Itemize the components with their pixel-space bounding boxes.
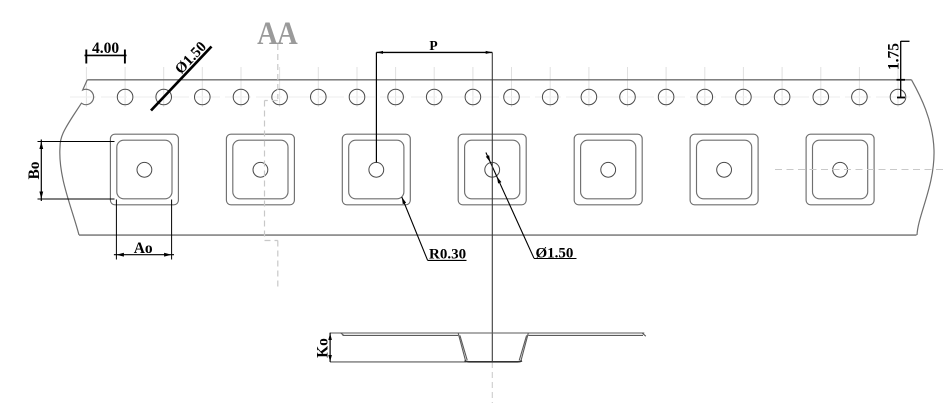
svg-text:AA: AA xyxy=(257,14,298,51)
svg-text:Ao: Ao xyxy=(134,240,153,257)
svg-text:P: P xyxy=(429,38,437,53)
svg-text:Ø1.50: Ø1.50 xyxy=(536,246,574,262)
svg-text:Ø1.50: Ø1.50 xyxy=(172,39,210,78)
svg-text:Ko: Ko xyxy=(315,338,332,358)
svg-text:4.00: 4.00 xyxy=(92,40,119,57)
svg-text:1.75: 1.75 xyxy=(886,43,903,70)
svg-text:Bo: Bo xyxy=(26,161,43,179)
svg-text:R0.30: R0.30 xyxy=(429,246,466,262)
